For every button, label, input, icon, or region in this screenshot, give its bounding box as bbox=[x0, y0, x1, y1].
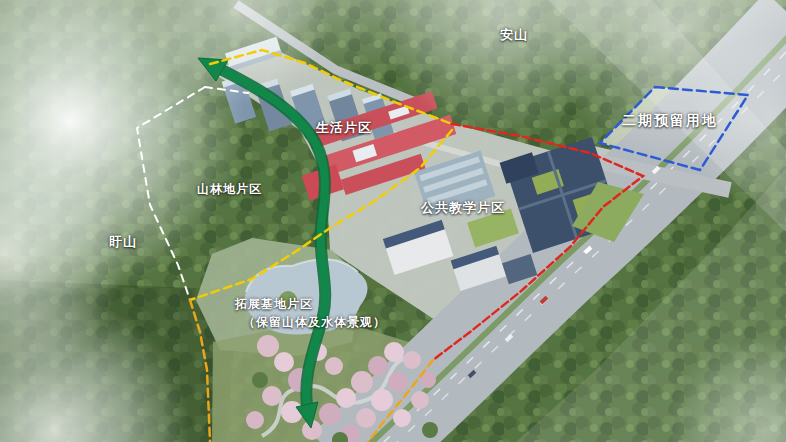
masterplan-rendering: 安山 二期预留用地 生活片区 山林地片区 盱山 公共教学片区 拓展基地片区 （保… bbox=[0, 0, 786, 442]
aerial-render-canvas bbox=[0, 0, 786, 442]
